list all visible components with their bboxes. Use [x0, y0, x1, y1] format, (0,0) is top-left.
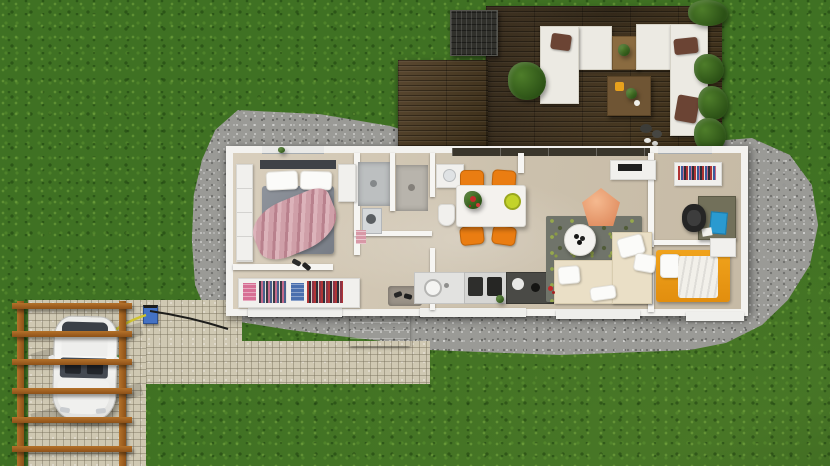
table-plant-flowers — [470, 196, 476, 202]
sink-basin — [443, 169, 456, 182]
wall-bath-mid — [390, 153, 395, 211]
coffee-table-cup — [634, 100, 640, 106]
wall-return-dining — [518, 153, 524, 173]
bedside-unit — [338, 164, 356, 202]
cooktop-burner — [468, 277, 483, 296]
office-chair-seat — [687, 210, 701, 226]
wardrobe-blue-stack — [291, 283, 304, 301]
windowsill-plant — [278, 147, 285, 153]
toilet — [438, 204, 455, 226]
wardrobe-pink-stack — [243, 283, 256, 301]
tv — [618, 164, 642, 171]
window-bedroom-top — [262, 146, 324, 154]
wardrobe-hanging-clothes — [307, 281, 343, 303]
shower-drain — [408, 184, 415, 191]
sliding-glass-door — [452, 148, 650, 156]
fruit-bowl — [504, 193, 521, 210]
shower-drain — [370, 180, 377, 187]
wardrobe-hanging-clothes — [259, 281, 287, 303]
terrace-plant — [698, 86, 728, 120]
worktop-sink — [512, 278, 524, 290]
bed2-pillow — [660, 254, 680, 278]
sofa-cushion — [674, 94, 700, 123]
kitchen-sink — [424, 279, 442, 297]
windowsill-bedroom2 — [686, 312, 744, 321]
house-feed-cable — [150, 311, 228, 329]
terrace-plant — [694, 54, 724, 84]
bed-headboard — [260, 160, 336, 169]
pink-towels — [356, 230, 366, 244]
cooktop-burner — [487, 277, 502, 296]
window-office-top — [658, 146, 712, 154]
storage-planter — [450, 10, 498, 56]
red-flower — [548, 286, 553, 291]
bedroom-closet-left — [236, 164, 253, 262]
nightstand — [710, 238, 736, 257]
round-coffee-table — [564, 224, 596, 256]
terrace-corner-foliage — [688, 0, 728, 26]
wall-bedroom-wardrobe — [233, 264, 333, 270]
wall-hall-upper — [430, 153, 435, 197]
pergola-beam — [12, 388, 132, 394]
bed-pillow — [266, 170, 299, 191]
pergola-beam — [12, 303, 132, 309]
table-decor — [574, 234, 579, 239]
terrace-deck-extension — [398, 60, 488, 154]
decor-pebble — [644, 138, 651, 143]
sofa-cushion — [550, 33, 572, 52]
decor-rock — [652, 130, 662, 138]
decor-rock — [640, 124, 652, 133]
sofa-cushion — [673, 37, 699, 55]
pergola-beam — [12, 331, 132, 337]
terrace-plant — [508, 62, 546, 100]
bed2-duvet — [678, 256, 718, 298]
windowsill-kitchen — [420, 308, 526, 317]
kitchen-faucet — [444, 283, 449, 288]
sofa-pillow — [557, 265, 580, 285]
pergola-beam — [12, 446, 132, 452]
kitchen-plant — [496, 295, 504, 303]
coffee-table-tray — [615, 82, 624, 91]
car-roof — [61, 335, 108, 356]
desk-paper — [701, 227, 712, 237]
windowsill-living — [556, 310, 640, 319]
pergola-beam — [12, 417, 132, 423]
wall-office-bedroom2 — [654, 240, 710, 245]
windowsill-wardrobe — [248, 308, 342, 317]
washer-door — [366, 214, 376, 224]
entrance-steps — [350, 314, 410, 346]
dining-chair — [491, 224, 517, 246]
floorplan-render — [0, 0, 830, 466]
worktop-kettle — [531, 283, 540, 292]
side-table-plant — [618, 44, 630, 56]
pergola-rail-left — [17, 301, 24, 466]
coffee-table-plant — [626, 88, 637, 99]
pergola-beam — [12, 359, 132, 365]
sofa-pillow — [633, 252, 658, 274]
dining-chair — [459, 225, 485, 246]
office-wardrobe-clothes — [678, 166, 716, 180]
pergola-rail-right — [119, 301, 126, 466]
